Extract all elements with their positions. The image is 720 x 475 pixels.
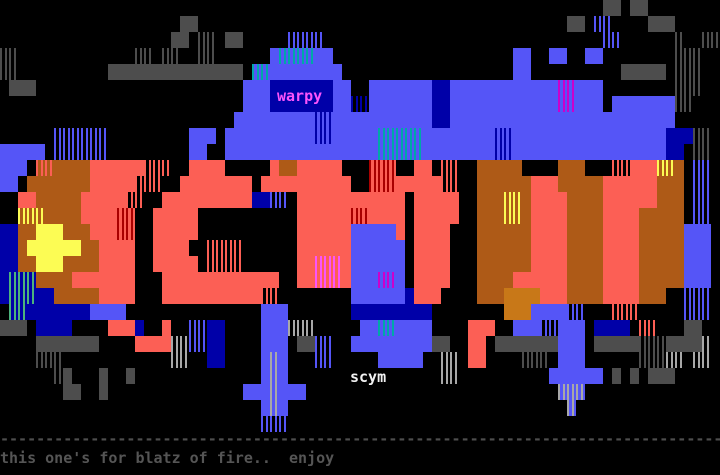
- artist-tag-warpy: warpy: [277, 88, 322, 104]
- ansi-art-screen: warpy scym -----------------------------…: [0, 0, 720, 475]
- art-row: [0, 96, 720, 112]
- art-row: [0, 192, 720, 208]
- group-tag-scym: scym: [350, 369, 386, 385]
- art-row: [0, 16, 720, 32]
- art-row: [0, 352, 720, 368]
- art-row: [0, 272, 720, 288]
- art-row: [0, 320, 720, 336]
- art-row: [0, 32, 720, 48]
- art-row: [0, 176, 720, 192]
- art-row: [0, 384, 720, 400]
- art-row: [0, 224, 720, 240]
- art-row: [0, 400, 720, 416]
- art-row: [0, 144, 720, 160]
- art-row: [0, 240, 720, 256]
- art-row: [0, 288, 720, 304]
- art-row: [0, 304, 720, 320]
- divider-dashed-line: ----------------------------------------…: [0, 431, 720, 447]
- art-row: [0, 128, 720, 144]
- art-row: [0, 0, 720, 16]
- art-row: [0, 208, 720, 224]
- art-row: [0, 64, 720, 80]
- art-row: [0, 160, 720, 176]
- art-row: [0, 80, 720, 96]
- art-row: [0, 48, 720, 64]
- art-row: [0, 256, 720, 272]
- dedication-line: this one's for blatz of fire.. enjoy: [0, 450, 334, 466]
- art-row: [0, 112, 720, 128]
- art-row: [0, 336, 720, 352]
- ansi-art-canvas: [0, 0, 720, 475]
